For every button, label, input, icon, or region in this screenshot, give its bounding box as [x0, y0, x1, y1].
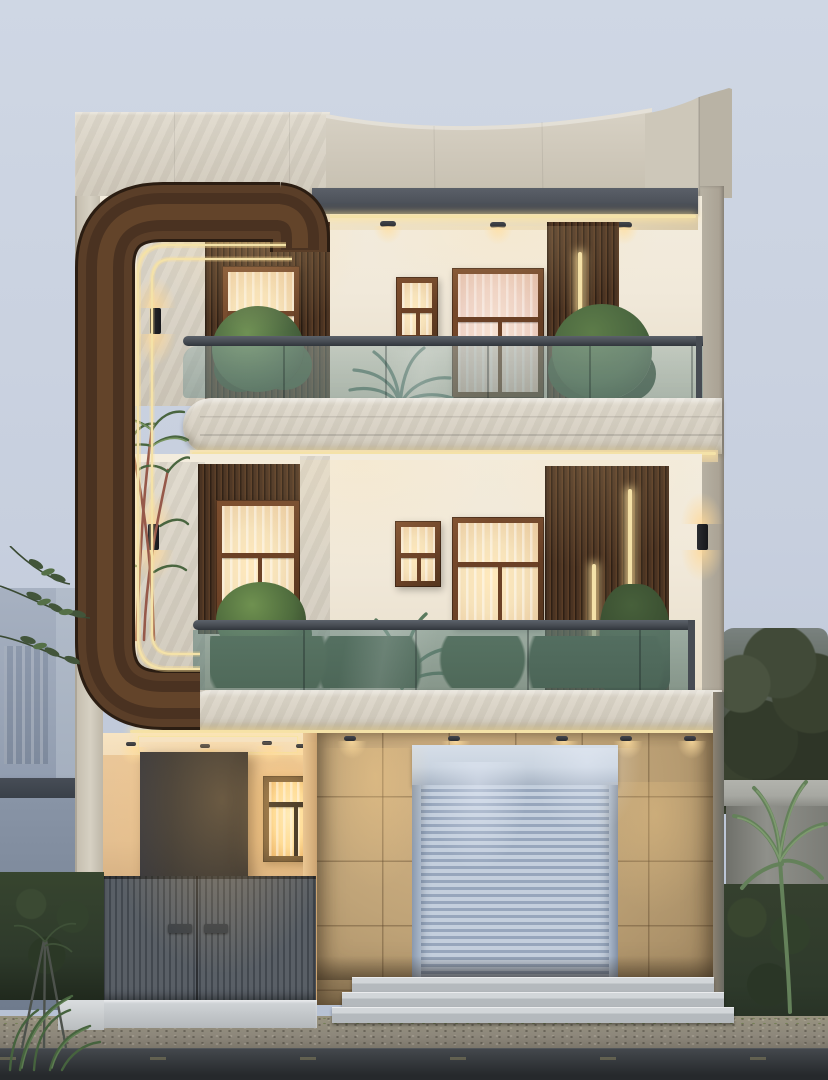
entry-step-3	[332, 1007, 734, 1023]
downlight	[490, 222, 506, 228]
gate-handle-right	[204, 924, 228, 933]
vertical-led-strip	[628, 489, 632, 591]
gate-handle-left	[168, 924, 192, 933]
window-mullion	[498, 564, 502, 623]
gate-center-seam	[196, 876, 198, 1002]
vertical-led-strip	[578, 252, 582, 314]
parapet-right-column	[645, 88, 732, 198]
sconce-uplight-glow	[675, 480, 729, 524]
building-right-ground-edge	[713, 692, 724, 1010]
entry-gate	[103, 876, 316, 1002]
middle-balcony-endpost	[688, 620, 695, 690]
window-mullion	[416, 309, 420, 335]
downlight	[126, 742, 136, 746]
palm-right	[730, 762, 828, 1022]
sconce-downlight-glow	[675, 550, 729, 594]
downlight	[556, 736, 568, 741]
shutter-guide-rail-left	[412, 785, 421, 977]
shutter-guide-rail-right	[609, 785, 618, 977]
shutter-curtain	[421, 785, 609, 977]
downlight	[380, 221, 396, 227]
shutter-header-box	[412, 745, 618, 785]
downlight	[684, 736, 696, 741]
window-mullion	[417, 554, 421, 581]
window-middle-small	[395, 521, 441, 587]
top-balcony-endpost	[696, 336, 702, 398]
wall-sconce-middle-right	[675, 480, 729, 594]
render-canvas	[0, 0, 828, 1080]
overhanging-leaves	[0, 546, 120, 696]
entry-step-2	[342, 992, 724, 1007]
downlight	[200, 744, 210, 748]
downlight	[344, 736, 356, 741]
entry-step-1	[352, 977, 714, 992]
downlight	[262, 741, 272, 745]
driveway-apron	[95, 1000, 317, 1028]
entry-door	[140, 752, 248, 882]
road-markings	[0, 1057, 828, 1060]
neighbor-canopy	[0, 778, 76, 798]
road	[0, 1048, 828, 1080]
sconce-body	[697, 524, 708, 550]
downlight	[620, 736, 632, 741]
fern-left	[0, 938, 104, 1072]
downlight	[448, 736, 460, 741]
window-top-small	[396, 277, 438, 341]
window-mullion	[294, 804, 298, 856]
